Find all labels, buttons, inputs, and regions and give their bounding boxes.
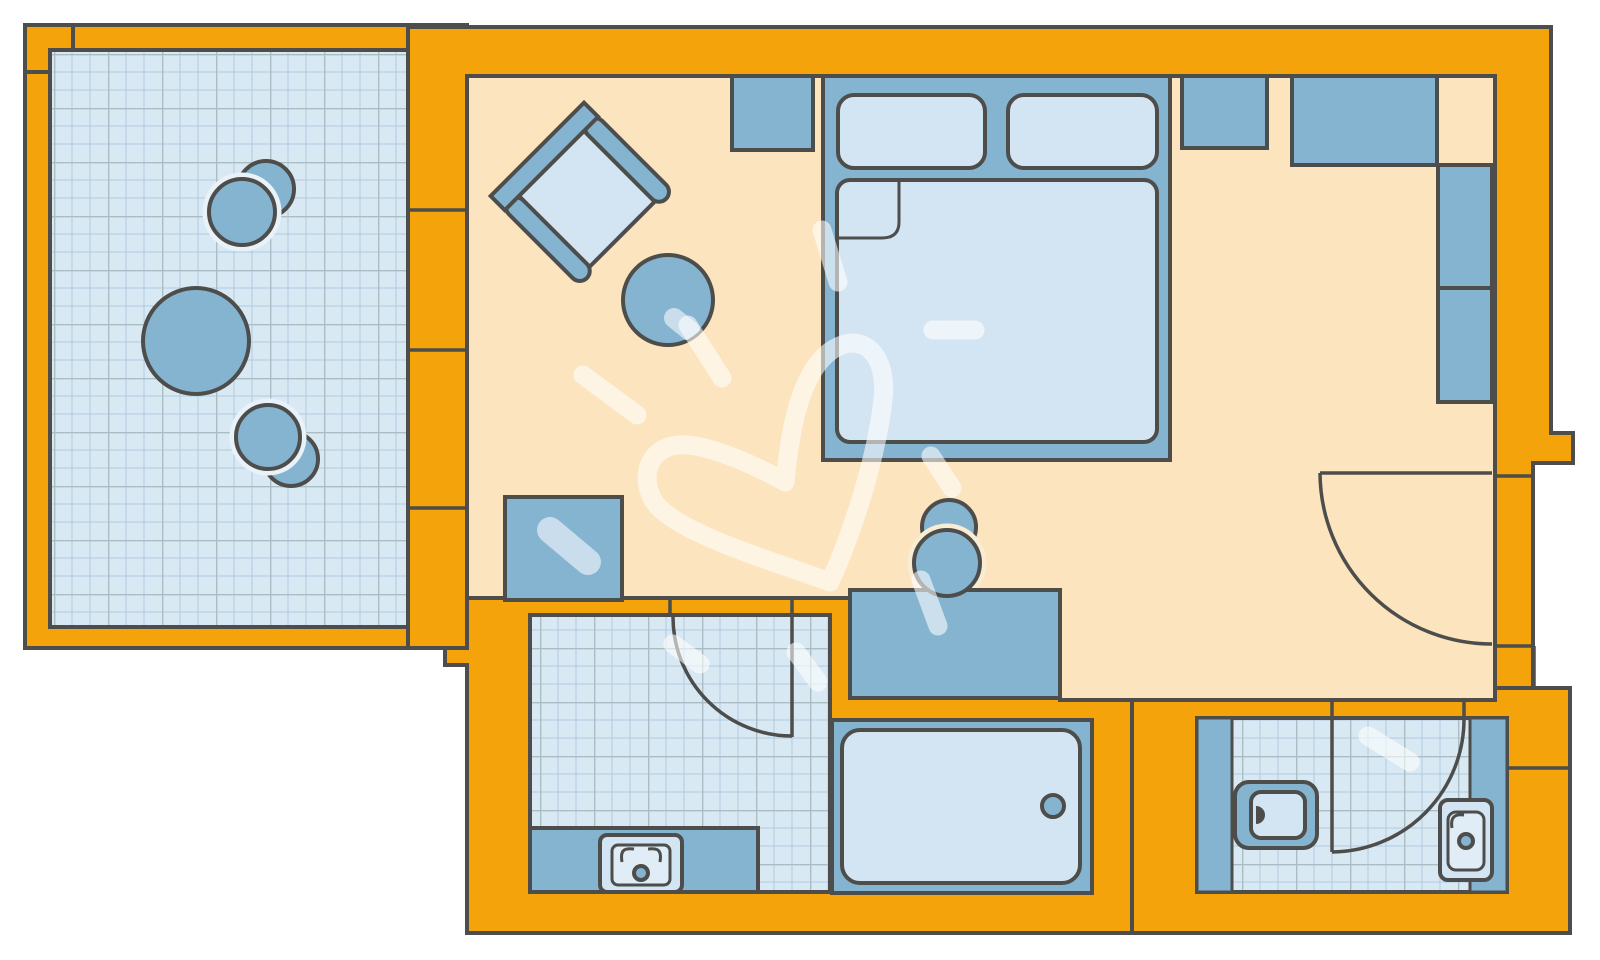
- balcony-table: [143, 288, 249, 394]
- floorplan-canvas: [0, 0, 1600, 960]
- wall-shelf-lower: [1438, 288, 1492, 402]
- drain: [634, 866, 648, 880]
- floorplan-svg: [0, 0, 1600, 960]
- bathtub: [832, 720, 1092, 893]
- pillow-left: [838, 95, 985, 168]
- nightstand: [1182, 76, 1267, 148]
- wardrobe: [1292, 76, 1437, 165]
- tv-sideboard: [732, 76, 813, 150]
- pillow-right: [1008, 95, 1157, 168]
- wc-washbasin: [1440, 800, 1492, 880]
- wc-side-panel-left: [1197, 718, 1232, 892]
- bathtub-drain: [1042, 795, 1064, 817]
- drain: [1459, 834, 1473, 848]
- chair-seat: [236, 405, 300, 469]
- chair-seat: [209, 179, 275, 245]
- wall-shelf-upper: [1438, 165, 1492, 288]
- washbasin: [600, 835, 682, 892]
- toilet: [1235, 782, 1317, 848]
- desk: [850, 590, 1060, 698]
